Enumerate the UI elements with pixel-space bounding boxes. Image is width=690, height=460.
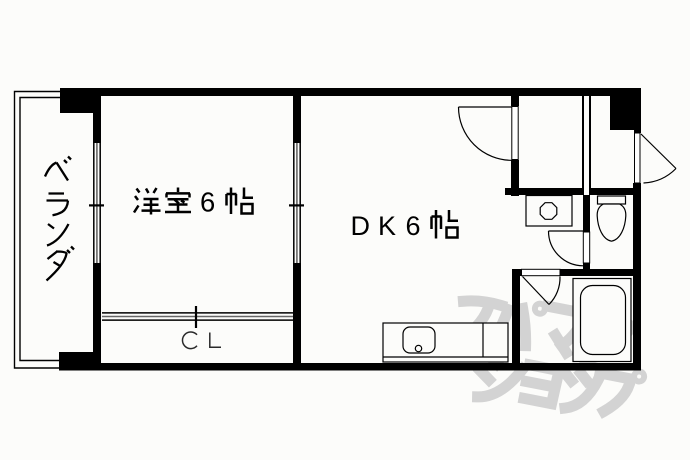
svg-text:D: D	[351, 211, 371, 241]
svg-text:6: 6	[406, 211, 421, 241]
svg-text:6: 6	[200, 187, 215, 218]
svg-text:K: K	[378, 211, 396, 241]
